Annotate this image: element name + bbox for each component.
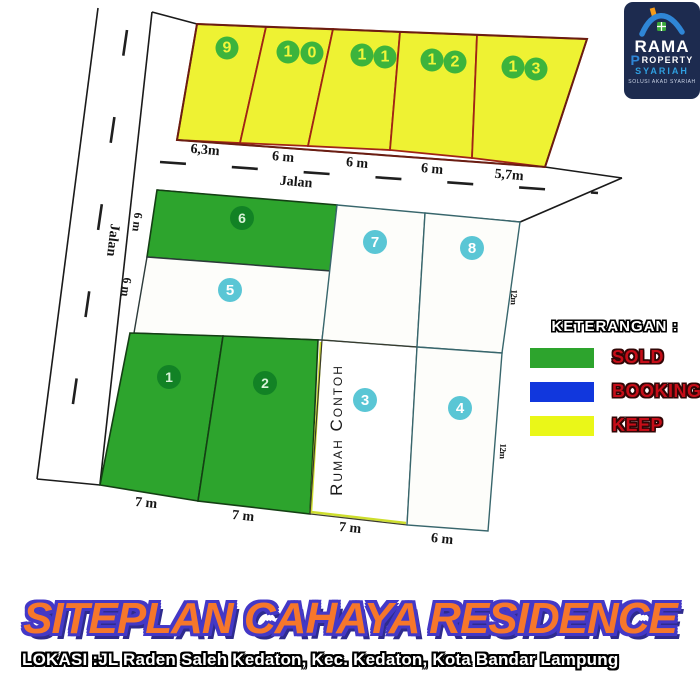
road-label-top: Jalan	[279, 174, 313, 193]
lot-13-badge-digit-1: 1	[502, 56, 525, 79]
legend-swatch-sold	[530, 348, 594, 368]
lot-5-badge: 5	[218, 278, 242, 302]
lot-7-shape	[322, 205, 425, 347]
lot-10-badge-digit-2: 0	[301, 42, 324, 65]
legend-row-booking: BOOKING	[530, 381, 700, 402]
legend-title: KETERANGAN :	[530, 318, 700, 335]
width-label-lot-10: 6 m	[271, 149, 294, 167]
rama-property-logo: RAMA PROPERTY SYARIAH SOLUSI AKAD SYARIA…	[624, 2, 700, 99]
lot-10-badge-digit-1: 1	[277, 41, 300, 64]
depth-label-lot-8: 12m	[509, 289, 520, 304]
width-label-lot-11: 6 m	[345, 155, 368, 173]
legend: KETERANGAN : SOLD BOOKING KEEP	[530, 318, 700, 449]
lot-11-badge-digit-2: 1	[374, 46, 397, 69]
lot-3-badge: 3	[353, 388, 377, 412]
lot-9-badge: 9	[216, 37, 239, 60]
lot-8-shape	[417, 213, 520, 353]
depth-label-lot-4: 12m	[498, 443, 509, 458]
depth-label-lot-5: 6 m	[117, 277, 134, 298]
lot-12-badge-digit-1: 1	[421, 49, 444, 72]
lot-13-shape	[472, 35, 587, 167]
legend-label-booking: BOOKING	[612, 381, 700, 402]
lot-13-badge-digit-2: 3	[525, 58, 548, 81]
siteplan-flyer: { "logo": { "brand": "RAMA", "property_i…	[0, 0, 700, 700]
width-label-lot-2: 7 m	[231, 508, 255, 526]
main-lots-block	[100, 190, 520, 531]
lot-4-badge: 4	[448, 396, 472, 420]
legend-label-sold: SOLD	[612, 347, 664, 368]
location-text: LOKASI :JL Raden Saleh Kedaton, Kec. Ked…	[22, 650, 618, 670]
house-roof-icon	[639, 6, 685, 38]
lot-12-badge-digit-2: 2	[444, 51, 467, 74]
rumah-contoh-label: Rumah Contoh	[327, 364, 347, 496]
width-label-lot-4: 6 m	[430, 531, 454, 549]
width-label-lot-9: 6,3m	[190, 142, 220, 160]
legend-swatch-booking	[530, 382, 594, 402]
lot-6-badge: 6	[230, 206, 254, 230]
width-label-lot-13: 5,7m	[494, 167, 524, 185]
lot-8-badge: 8	[460, 236, 484, 260]
lot-4-shape	[407, 347, 502, 531]
logo-property-initial: P	[631, 55, 642, 66]
lot-1-badge: 1	[157, 365, 181, 389]
logo-tagline-text: SOLUSI AKAD SYARIAH	[628, 79, 695, 85]
logo-property-text: PROPERTY	[631, 55, 694, 66]
logo-brand-text: RAMA	[635, 38, 690, 55]
page-title: SITEPLAN CAHAYA RESIDENCE	[0, 594, 700, 644]
logo-syariah-text: SYARIAH	[635, 66, 689, 77]
legend-label-keep: KEEP	[612, 415, 663, 436]
width-label-lot-1: 7 m	[134, 495, 158, 513]
lot-3-accent-border	[311, 342, 406, 523]
lot-2-badge: 2	[253, 371, 277, 395]
lot-11-badge-digit-1: 1	[351, 44, 374, 67]
legend-swatch-keep	[530, 416, 594, 436]
depth-label-lot-6: 6 m	[128, 212, 145, 233]
lot-7-badge: 7	[363, 230, 387, 254]
width-label-lot-3: 7 m	[338, 520, 362, 538]
legend-row-sold: SOLD	[530, 347, 700, 368]
legend-row-keep: KEEP	[530, 415, 700, 436]
width-label-lot-12: 6 m	[420, 161, 443, 179]
